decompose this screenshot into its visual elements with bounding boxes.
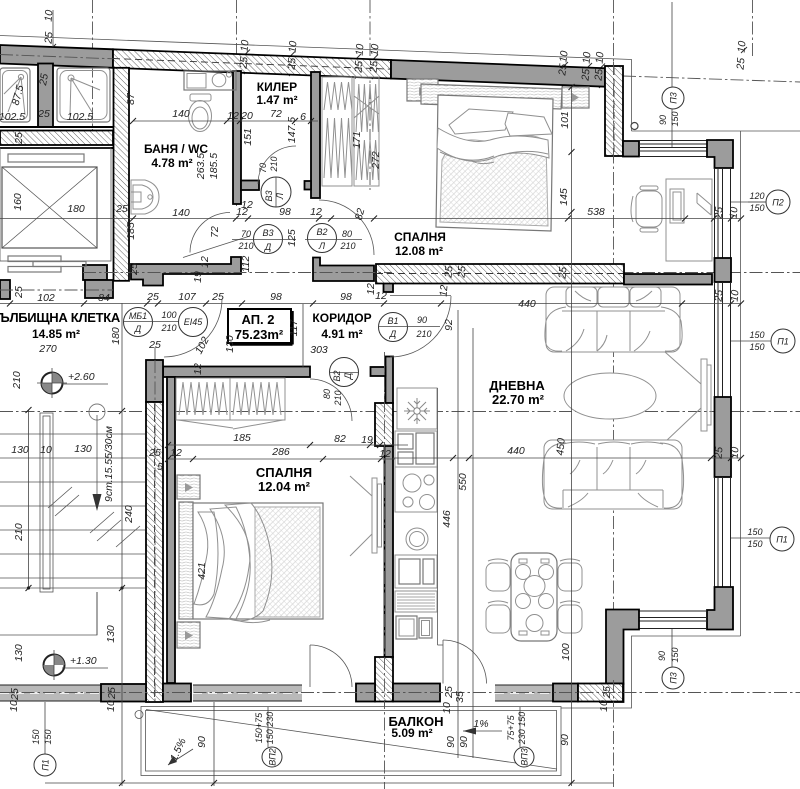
svg-text:КОРИДОР: КОРИДОР — [312, 311, 371, 325]
svg-text:80: 80 — [322, 389, 332, 399]
svg-text:5.09 m²: 5.09 m² — [391, 726, 432, 740]
svg-text:90: 90 — [417, 315, 427, 325]
svg-text:10: 10 — [736, 40, 749, 53]
svg-text:25: 25 — [115, 203, 128, 215]
svg-text:25: 25 — [367, 60, 380, 74]
svg-text:90: 90 — [657, 651, 667, 661]
svg-text:130: 130 — [224, 335, 236, 353]
svg-text:10: 10 — [729, 446, 742, 459]
svg-text:210: 210 — [13, 523, 25, 542]
svg-text:4.91 m²: 4.91 m² — [321, 327, 362, 341]
svg-text:75+75: 75+75 — [506, 714, 516, 740]
svg-text:25: 25 — [146, 291, 159, 303]
svg-text:35: 35 — [454, 691, 466, 703]
svg-text:82: 82 — [334, 433, 346, 445]
svg-text:25: 25 — [556, 63, 569, 77]
svg-text:10: 10 — [354, 43, 367, 56]
svg-text:98: 98 — [270, 291, 282, 303]
svg-text:80: 80 — [342, 229, 352, 239]
svg-text:10: 10 — [369, 43, 382, 56]
svg-text:10: 10 — [557, 50, 570, 63]
svg-text:+2.60: +2.60 — [68, 371, 95, 383]
svg-text:25: 25 — [592, 68, 605, 82]
svg-text:В2: В2 — [316, 227, 327, 237]
svg-text:90: 90 — [559, 734, 571, 746]
svg-text:102.5: 102.5 — [0, 111, 25, 123]
svg-text:230 150: 230 150 — [517, 712, 527, 746]
svg-text:70: 70 — [241, 229, 251, 239]
svg-text:12: 12 — [170, 447, 182, 459]
svg-text:25: 25 — [712, 446, 725, 460]
svg-text:140: 140 — [172, 108, 190, 120]
svg-text:Д: Д — [264, 242, 272, 252]
svg-text:5: 5 — [157, 461, 163, 473]
svg-text:10: 10 — [40, 444, 52, 456]
svg-text:В2: В2 — [332, 370, 342, 381]
svg-text:440: 440 — [507, 445, 525, 457]
svg-text:150: 150 — [749, 342, 764, 352]
svg-text:210: 210 — [333, 390, 343, 406]
svg-text:П1: П1 — [777, 337, 789, 347]
svg-text:Л: Л — [275, 192, 285, 200]
svg-text:130: 130 — [74, 443, 92, 455]
svg-text:14.85 m²: 14.85 m² — [32, 327, 80, 341]
svg-text:АП. 2: АП. 2 — [241, 312, 274, 327]
svg-text:100: 100 — [560, 643, 572, 661]
svg-text:25: 25 — [352, 60, 365, 74]
svg-text:210: 210 — [160, 323, 176, 333]
svg-text:147.5: 147.5 — [286, 117, 298, 143]
svg-text:270: 270 — [38, 343, 57, 355]
svg-text:EI45: EI45 — [184, 317, 204, 327]
svg-text:22.70 m²: 22.70 m² — [492, 392, 545, 407]
svg-text:10: 10 — [287, 40, 300, 53]
svg-text:12: 12 — [192, 363, 204, 375]
svg-text:ВП2: ВП2 — [268, 748, 278, 766]
svg-text:10: 10 — [8, 700, 20, 712]
svg-text:150: 150 — [670, 111, 680, 126]
svg-text:10: 10 — [581, 51, 594, 64]
svg-text:90: 90 — [196, 736, 208, 748]
svg-text:150: 150 — [749, 203, 764, 213]
svg-text:25: 25 — [37, 73, 51, 88]
svg-text:102.5: 102.5 — [67, 111, 93, 123]
svg-text:210: 210 — [269, 156, 279, 172]
svg-text:272: 272 — [370, 151, 382, 170]
svg-text:П3: П3 — [669, 92, 679, 104]
svg-text:90: 90 — [658, 115, 668, 125]
svg-text:538: 538 — [587, 206, 605, 218]
svg-text:ВП3: ВП3 — [520, 748, 530, 766]
svg-text:9ст.15.55/30см: 9ст.15.55/30см — [103, 426, 115, 502]
svg-text:160: 160 — [12, 193, 24, 211]
svg-text:120: 120 — [749, 191, 764, 201]
svg-text:180: 180 — [67, 203, 85, 215]
svg-text:130: 130 — [11, 444, 29, 456]
svg-text:92: 92 — [443, 319, 455, 331]
svg-text:4.78 m²: 4.78 m² — [151, 156, 192, 170]
svg-text:ДНЕВНА: ДНЕВНА — [489, 378, 545, 393]
svg-text:446: 446 — [441, 510, 453, 528]
svg-text:10: 10 — [598, 700, 610, 712]
svg-text:98: 98 — [340, 291, 352, 303]
svg-text:185.5: 185.5 — [208, 153, 220, 179]
svg-text:210: 210 — [415, 329, 431, 339]
svg-text:25: 25 — [106, 687, 118, 700]
svg-text:Л: Л — [318, 241, 326, 251]
svg-text:101: 101 — [559, 111, 571, 129]
svg-text:12: 12 — [365, 283, 377, 295]
svg-text:210: 210 — [237, 241, 253, 251]
svg-text:210: 210 — [11, 371, 23, 390]
svg-text:10: 10 — [441, 702, 453, 714]
svg-text:25: 25 — [13, 286, 25, 299]
svg-text:25: 25 — [13, 132, 25, 145]
svg-text:20: 20 — [240, 110, 253, 122]
svg-text:25: 25 — [712, 206, 725, 220]
svg-text:150: 150 — [747, 527, 762, 537]
svg-text:303: 303 — [310, 344, 328, 356]
svg-text:25: 25 — [734, 57, 747, 71]
svg-text:150 230: 150 230 — [265, 712, 275, 745]
svg-text:П1: П1 — [41, 759, 51, 771]
svg-text:25: 25 — [148, 339, 161, 351]
svg-text:286: 286 — [271, 446, 290, 458]
svg-text:84: 84 — [98, 292, 110, 304]
svg-text:6: 6 — [300, 111, 306, 123]
svg-text:185: 185 — [125, 222, 137, 240]
svg-text:П3: П3 — [669, 672, 679, 684]
svg-text:10: 10 — [728, 206, 741, 219]
svg-text:МБ1: МБ1 — [129, 311, 147, 321]
svg-text:25: 25 — [712, 289, 725, 303]
svg-text:12: 12 — [199, 256, 211, 268]
svg-text:130: 130 — [105, 625, 117, 643]
svg-text:10: 10 — [729, 289, 742, 302]
svg-text:+1.30: +1.30 — [70, 655, 97, 667]
svg-text:72: 72 — [209, 226, 221, 238]
svg-text:10: 10 — [43, 9, 56, 22]
svg-text:25: 25 — [579, 68, 592, 82]
svg-text:12.08 m²: 12.08 m² — [395, 244, 443, 258]
svg-text:12: 12 — [227, 110, 239, 122]
svg-text:СПАЛНЯ: СПАЛНЯ — [256, 465, 312, 480]
svg-text:25: 25 — [128, 263, 140, 276]
svg-text:Д: Д — [134, 324, 142, 334]
svg-text:117: 117 — [288, 318, 300, 336]
svg-text:Д: Д — [389, 329, 397, 339]
svg-text:150: 150 — [43, 729, 53, 744]
svg-text:25: 25 — [237, 56, 250, 70]
svg-text:70: 70 — [258, 163, 268, 173]
svg-text:25: 25 — [285, 57, 298, 71]
svg-text:25: 25 — [455, 265, 468, 279]
svg-text:В1: В1 — [387, 316, 398, 326]
svg-text:240: 240 — [123, 505, 135, 524]
svg-text:140: 140 — [172, 207, 190, 219]
svg-text:10: 10 — [239, 39, 252, 52]
svg-text:150: 150 — [670, 647, 680, 662]
svg-text:151: 151 — [242, 128, 254, 146]
svg-text:107: 107 — [178, 291, 197, 303]
svg-text:КИЛЕР: КИЛЕР — [257, 80, 297, 94]
svg-text:210: 210 — [339, 241, 355, 251]
svg-text:12: 12 — [438, 284, 451, 297]
svg-text:12.04 m²: 12.04 m² — [258, 479, 311, 494]
svg-text:25: 25 — [42, 31, 55, 45]
svg-text:19: 19 — [192, 271, 204, 283]
svg-text:П1: П1 — [776, 535, 788, 545]
svg-text:25: 25 — [601, 686, 613, 699]
svg-text:72: 72 — [270, 108, 282, 120]
svg-text:150: 150 — [747, 539, 762, 549]
svg-text:В3: В3 — [264, 190, 274, 201]
svg-text:СПАЛНЯ: СПАЛНЯ — [394, 230, 446, 244]
svg-text:150: 150 — [749, 330, 764, 340]
svg-text:25: 25 — [556, 266, 569, 280]
svg-text:75.23m²: 75.23m² — [235, 327, 284, 342]
svg-text:12: 12 — [379, 448, 391, 460]
svg-text:98: 98 — [279, 206, 291, 218]
svg-text:12: 12 — [310, 206, 322, 218]
svg-text:150: 150 — [31, 729, 41, 744]
svg-text:171: 171 — [351, 131, 363, 149]
svg-text:25: 25 — [211, 291, 224, 303]
svg-text:440: 440 — [518, 298, 536, 310]
svg-text:180: 180 — [110, 327, 122, 345]
svg-text:87: 87 — [125, 92, 137, 105]
svg-text:100: 100 — [161, 310, 176, 320]
svg-text:25: 25 — [37, 108, 50, 120]
svg-text:1.47 m²: 1.47 m² — [256, 93, 297, 107]
svg-text:550: 550 — [457, 473, 469, 491]
svg-text:25: 25 — [148, 447, 161, 459]
svg-text:130: 130 — [13, 644, 25, 662]
svg-text:Д: Д — [343, 372, 353, 380]
svg-text:12: 12 — [241, 199, 253, 211]
svg-text:421: 421 — [196, 562, 208, 580]
svg-text:25: 25 — [442, 265, 455, 279]
svg-text:185: 185 — [233, 432, 251, 444]
svg-text:10: 10 — [594, 51, 607, 64]
svg-text:145: 145 — [558, 188, 570, 206]
svg-text:СТЪЛБИЩНА КЛЕТКА: СТЪЛБИЩНА КЛЕТКА — [0, 310, 121, 325]
svg-text:П2: П2 — [772, 198, 784, 208]
svg-text:102: 102 — [37, 292, 55, 304]
svg-text:90: 90 — [458, 736, 470, 748]
svg-text:В3: В3 — [262, 228, 273, 238]
svg-text:90: 90 — [445, 736, 457, 748]
svg-text:10: 10 — [105, 700, 117, 712]
svg-text:150+75: 150+75 — [254, 712, 264, 743]
svg-text:263.5: 263.5 — [195, 153, 207, 180]
svg-text:25: 25 — [9, 688, 21, 701]
svg-text:125: 125 — [286, 229, 298, 247]
svg-text:450: 450 — [554, 437, 567, 456]
svg-text:19: 19 — [361, 434, 373, 446]
svg-text:112: 112 — [240, 255, 252, 272]
